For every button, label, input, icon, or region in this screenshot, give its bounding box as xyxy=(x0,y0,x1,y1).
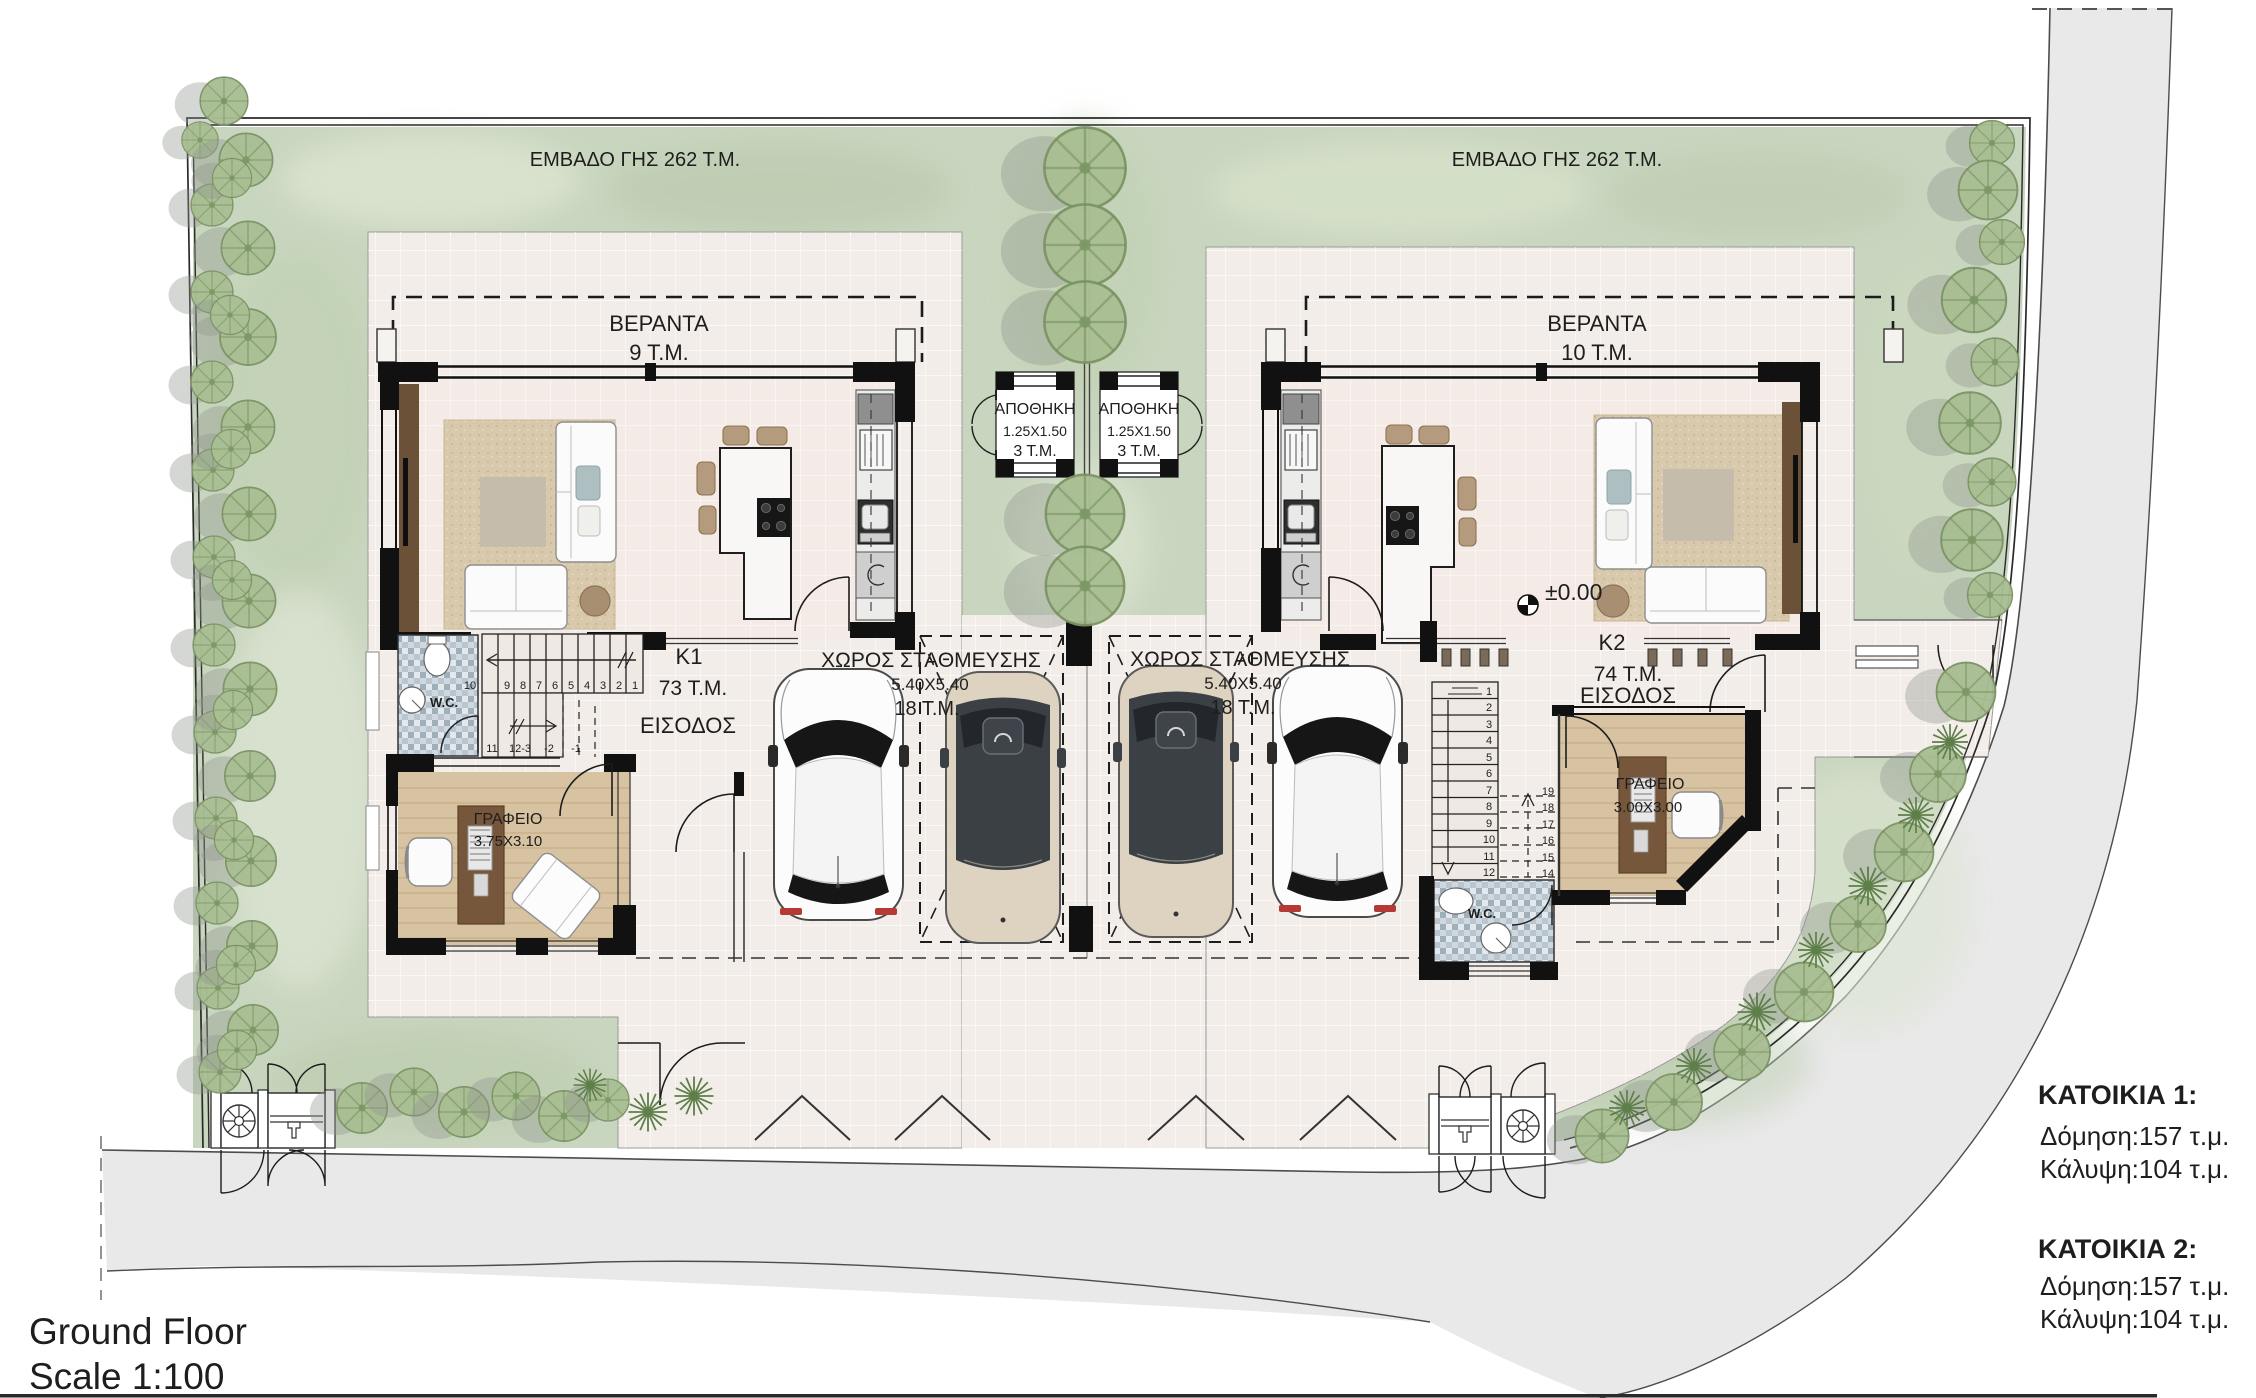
svg-text:Δόμηση:157 τ.μ.: Δόμηση:157 τ.μ. xyxy=(2040,1121,2229,1151)
svg-text:10: 10 xyxy=(464,680,476,692)
svg-text:ΚΑΤΟΙΚΙΑ 2:: ΚΑΤΟΙΚΙΑ 2: xyxy=(2038,1234,2197,1264)
svg-text:6: 6 xyxy=(552,680,558,692)
svg-text:Κάλυψη:104 τ.μ.: Κάλυψη:104 τ.μ. xyxy=(2040,1304,2229,1334)
svg-text:4: 4 xyxy=(1486,735,1492,747)
svg-text:Κάλυψη:104 τ.μ.: Κάλυψη:104 τ.μ. xyxy=(2040,1154,2229,1184)
svg-text:ΚΑΤΟΙΚΙΑ 1:: ΚΑΤΟΙΚΙΑ 1: xyxy=(2038,1080,2197,1110)
svg-text:19: 19 xyxy=(1542,786,1554,798)
svg-text:ΧΩΡΟΣ ΣΤΑΘΜΕΥΣΗΣ: ΧΩΡΟΣ ΣΤΑΘΜΕΥΣΗΣ xyxy=(1130,648,1350,671)
svg-text:11: 11 xyxy=(486,743,497,755)
svg-text:W.C.: W.C. xyxy=(1468,906,1496,921)
svg-text:15: 15 xyxy=(1542,852,1554,864)
svg-text:ΒΕΡΑΝΤΑ: ΒΕΡΑΝΤΑ xyxy=(1547,311,1647,336)
svg-text:14: 14 xyxy=(1542,868,1554,880)
svg-text:ΑΠΟΘΗΚΗ: ΑΠΟΘΗΚΗ xyxy=(1099,401,1180,418)
svg-text:ΧΩΡΟΣ ΣΤΑΘΜΕΥΣΗΣ: ΧΩΡΟΣ ΣΤΑΘΜΕΥΣΗΣ xyxy=(821,649,1041,672)
svg-text:10: 10 xyxy=(1483,834,1495,846)
svg-text:4: 4 xyxy=(584,680,590,692)
svg-text:9 Τ.Μ.: 9 Τ.Μ. xyxy=(629,340,689,365)
svg-text:2: 2 xyxy=(1486,702,1492,714)
svg-text:5.40X5.40: 5.40X5.40 xyxy=(891,675,969,694)
svg-text:3.00X3.00: 3.00X3.00 xyxy=(1614,799,1682,816)
svg-text:ΕΙΣΟΔΟΣ: ΕΙΣΟΔΟΣ xyxy=(1580,683,1676,708)
svg-text:8: 8 xyxy=(520,680,526,692)
svg-text:Ground Floor: Ground Floor xyxy=(29,1311,247,1352)
svg-text:ΒΕΡΑΝΤΑ: ΒΕΡΑΝΤΑ xyxy=(609,311,709,336)
svg-text:K1: K1 xyxy=(676,644,703,669)
svg-text:ΕΜΒΑΔΟ ΓΗΣ 262 Τ.Μ.: ΕΜΒΑΔΟ ΓΗΣ 262 Τ.Μ. xyxy=(1452,149,1662,171)
svg-text:ΓΡΑΦΕΙΟ: ΓΡΑΦΕΙΟ xyxy=(1616,776,1685,793)
svg-text:Scale 1:100: Scale 1:100 xyxy=(29,1356,224,1397)
svg-text:5: 5 xyxy=(1486,752,1492,764)
svg-text:ΕΙΣΟΔΟΣ: ΕΙΣΟΔΟΣ xyxy=(640,713,736,738)
svg-text:K2: K2 xyxy=(1599,630,1626,655)
svg-text:18 Τ.Μ.: 18 Τ.Μ. xyxy=(894,698,959,720)
svg-text:ΓΡΑΦΕΙΟ: ΓΡΑΦΕΙΟ xyxy=(474,811,543,828)
svg-text:9: 9 xyxy=(1486,818,1492,830)
svg-text:5.40X5.40: 5.40X5.40 xyxy=(1204,674,1282,693)
svg-text:1.25X1.50: 1.25X1.50 xyxy=(1003,423,1067,439)
svg-text:7: 7 xyxy=(536,680,542,692)
svg-text:9: 9 xyxy=(504,680,510,692)
svg-text:W.C.: W.C. xyxy=(430,695,458,710)
svg-text:7: 7 xyxy=(1486,785,1492,797)
svg-text:18 Τ.Μ.: 18 Τ.Μ. xyxy=(1210,697,1275,719)
svg-text:16: 16 xyxy=(1542,835,1554,847)
svg-text:12: 12 xyxy=(1483,867,1495,879)
svg-text:1.25X1.50: 1.25X1.50 xyxy=(1107,423,1171,439)
svg-text:3 Τ.Μ.: 3 Τ.Μ. xyxy=(1013,443,1056,460)
svg-text:±0.00: ±0.00 xyxy=(1545,579,1602,605)
svg-text:73 Τ.Μ.: 73 Τ.Μ. xyxy=(659,677,728,700)
svg-text:-1: -1 xyxy=(571,743,581,755)
svg-text:8: 8 xyxy=(1486,801,1492,813)
svg-text:ΑΠΟΘΗΚΗ: ΑΠΟΘΗΚΗ xyxy=(995,401,1076,418)
svg-text:3.75X3.10: 3.75X3.10 xyxy=(474,833,542,850)
svg-text:3: 3 xyxy=(600,680,606,692)
svg-text:18: 18 xyxy=(1542,802,1554,814)
svg-text:12-3: 12-3 xyxy=(509,743,531,755)
svg-text:10 Τ.Μ.: 10 Τ.Μ. xyxy=(1561,340,1633,365)
svg-text:1: 1 xyxy=(1486,686,1492,698)
svg-text:17: 17 xyxy=(1542,819,1554,831)
svg-text:Δόμηση:157 τ.μ.: Δόμηση:157 τ.μ. xyxy=(2040,1271,2229,1301)
svg-text:6: 6 xyxy=(1486,768,1492,780)
svg-text:ΕΜΒΑΔΟ ΓΗΣ 262 Τ.Μ.: ΕΜΒΑΔΟ ΓΗΣ 262 Τ.Μ. xyxy=(530,149,740,171)
svg-text:1: 1 xyxy=(632,680,638,692)
svg-text:3: 3 xyxy=(1486,719,1492,731)
svg-text:11: 11 xyxy=(1483,851,1494,863)
svg-text:3 Τ.Μ.: 3 Τ.Μ. xyxy=(1117,443,1160,460)
svg-text:2: 2 xyxy=(616,680,622,692)
svg-text:5: 5 xyxy=(568,680,574,692)
svg-text:-2: -2 xyxy=(544,743,554,755)
